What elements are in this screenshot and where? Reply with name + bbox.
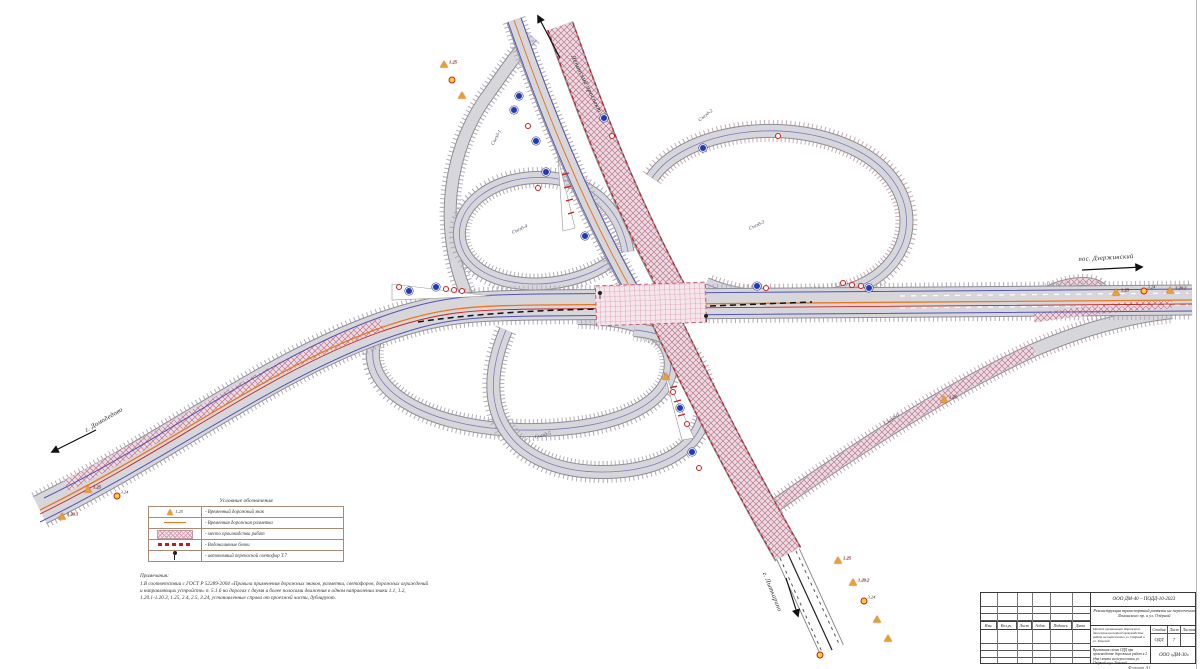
traffic-sign-red	[670, 389, 676, 395]
traffic-sign-code: 3.24	[1148, 285, 1156, 290]
traffic-sign-blue	[600, 114, 608, 122]
ramp-southeast	[766, 312, 1172, 512]
legend-row-work-zone: - место производства работ	[149, 529, 344, 540]
traffic-sign-code: 1.25	[843, 556, 851, 561]
traffic-sign-red	[763, 285, 769, 291]
traffic-sign-red	[696, 465, 702, 471]
traffic-sign-tri: 1.20.2	[849, 579, 857, 586]
legend-row-temporary-marking: - Временная дорожная разметка	[149, 518, 344, 529]
traffic-sign-code: 1.25	[1121, 288, 1129, 293]
traffic-sign-blue	[432, 283, 440, 291]
traffic-sign-blue	[581, 232, 589, 240]
interchange-map	[0, 0, 1200, 669]
traffic-sign-tri	[873, 616, 881, 623]
traffic-sign-blue	[676, 404, 684, 412]
loop-northeast	[652, 131, 907, 299]
drawing-sheet: Ленинский проспектпос. Дзержинскийг. Дом…	[0, 0, 1200, 669]
traffic-sign-blue	[699, 144, 707, 152]
traffic-sign-yellow	[817, 652, 824, 659]
traffic-sign-tri: 1.25	[440, 61, 448, 68]
stage-value: ОДД	[1151, 634, 1168, 646]
traffic-sign-code: 1.20.2	[858, 578, 869, 583]
traffic-sign-tri	[662, 373, 670, 380]
traffic-sign-tri: 1.25	[940, 396, 948, 403]
traffic-sign-red	[609, 133, 615, 139]
traffic-sign-code: 1.25	[449, 60, 457, 65]
traffic-sign-red	[775, 133, 781, 139]
bottom-exit-road	[780, 551, 840, 652]
traffic-sign-yellow	[449, 77, 456, 84]
sheet-number: 7	[1168, 634, 1181, 646]
traffic-sign-blue	[753, 282, 761, 290]
traffic-sign-blue	[532, 137, 540, 145]
traffic-sign-red	[443, 286, 449, 292]
traffic-sign-code: 1.20.1	[67, 512, 78, 517]
legend-title: Условные обозначения	[148, 498, 344, 504]
traffic-sign-tri	[458, 92, 466, 99]
traffic-sign-blue	[510, 106, 518, 114]
traffic-sign-code: 3.24	[121, 490, 129, 495]
traffic-sign-red	[858, 283, 864, 289]
drawing-title: Временная схема ОДД при производстве дор…	[1091, 647, 1151, 664]
traffic-sign-red	[459, 288, 465, 294]
traffic-sign-blue	[542, 168, 550, 176]
water-blocks-icon	[158, 543, 192, 545]
traffic-sign-blue	[405, 287, 413, 295]
project-name: Реконструкция транспортной развязки на п…	[1091, 607, 1197, 626]
document-number: ООО ДМ-40 – ПОДД-10-2023	[1091, 593, 1197, 607]
temporary-sign-icon	[167, 509, 173, 515]
traffic-sign-tri: 1.25	[84, 486, 92, 493]
traffic-sign-tri: 1.20.1	[58, 513, 66, 520]
traffic-sign-red	[840, 280, 846, 286]
traffic-sign-tri	[884, 635, 892, 642]
traffic-sign-code: 1.20.2	[1175, 286, 1186, 291]
title-block-revision-table: Изм. Кол.уч. Лист №док. Подпись Дата	[981, 593, 1091, 663]
sheet-frame-edge	[1196, 0, 1197, 669]
legend: Условные обозначения 1.25 - Временный до…	[148, 498, 344, 562]
notes: Примечания: 1.В соответствии с ГОСТ Р 52…	[140, 573, 715, 602]
notes-line: 1.В соответствии с ГОСТ Р 52289-2004 «Пр…	[140, 581, 715, 588]
diagonal-road-south-workzone	[649, 308, 802, 559]
bridge-workzone	[595, 282, 706, 326]
traffic-sign-yellow: 3.24	[114, 493, 121, 500]
traffic-sign-red	[451, 287, 457, 293]
title-block: Изм. Кол.уч. Лист №док. Подпись Дата ООО…	[980, 592, 1196, 664]
traffic-sign-red	[849, 282, 855, 288]
traffic-sign-tri: 1.25	[1112, 289, 1120, 296]
traffic-sign-tri: 1.25	[834, 557, 842, 564]
traffic-sign-blue	[515, 92, 523, 100]
traffic-sign-red	[684, 421, 690, 427]
portable-traffic-light-icon	[172, 552, 178, 560]
traffic-sign-code: 1.25	[93, 485, 101, 490]
legend-row-traffic-light: - автономный переносной светофор Т.7	[149, 551, 344, 562]
traffic-sign-tri: 1.20.2	[1166, 287, 1174, 294]
traffic-sign-red	[396, 284, 402, 290]
work-zone-hatch-icon	[157, 530, 193, 539]
legend-row-temporary-sign: 1.25 - Временный дорожный знак	[149, 507, 344, 518]
traffic-sign-red	[535, 185, 541, 191]
temporary-marking-icon	[164, 522, 186, 523]
traffic-sign-blue	[688, 448, 696, 456]
stage-sheet-cells: Стадия Лист Листов ОДД 7	[1151, 626, 1197, 646]
sheets-total	[1181, 634, 1197, 646]
object-description: Проект организации дорожного движения на…	[1091, 626, 1151, 646]
loop-southwest	[373, 318, 671, 430]
traffic-sign-code: 3.24	[868, 595, 876, 600]
notes-line: и направляющих устройств» п. 5.1.6 на до…	[140, 588, 715, 595]
traffic-sign-code: 1.25	[949, 395, 957, 400]
traffic-sign-red	[525, 123, 531, 129]
notes-title: Примечания:	[140, 573, 715, 580]
company-name: ООО «ДМ-30»	[1151, 647, 1197, 664]
traffic-sign-blue	[865, 284, 873, 292]
format-note: Формат А1	[1128, 665, 1150, 669]
traffic-sign-yellow: 3.24	[1141, 288, 1148, 295]
notes-line: 1.20.1-1.20.3, 1.25, 2.4, 2.5, 3.24, уст…	[140, 595, 715, 602]
legend-row-water-blocks: - Водоналивные блоки	[149, 540, 344, 551]
traffic-sign-yellow: 3.24	[861, 598, 868, 605]
